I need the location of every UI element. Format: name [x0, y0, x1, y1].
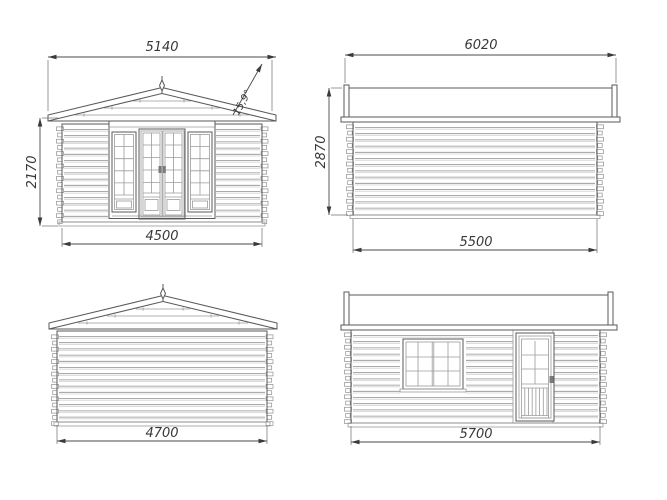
dim-side-upper-overall-height: 2870	[314, 135, 329, 168]
rear-elevation-view: 4700	[49, 284, 277, 444]
dim-side-upper-overall-width: 6020	[464, 38, 497, 53]
front-elevation-geometry	[38, 55, 276, 247]
dim-front-overall-width: 5140	[145, 40, 178, 55]
technical-drawing-cabin-elevations: 5140 2170 4500 15,9° 6020 2870 5500 4700…	[0, 0, 667, 500]
dim-side-lower-base-width: 5700	[459, 427, 492, 442]
front-elevation-view: 5140 2170 4500 15,9°	[25, 40, 276, 247]
side-elevation-upper-view: 6020 2870 5500	[314, 38, 620, 253]
dim-front-base-width: 4500	[145, 229, 178, 244]
side-elevation-lower-geometry	[341, 292, 617, 445]
rear-elevation-geometry	[49, 284, 277, 444]
dim-front-wall-height: 2170	[25, 155, 40, 188]
side-elevation-upper-geometry	[327, 53, 620, 253]
side-elevation-lower-view: 5700	[341, 292, 617, 445]
dim-rear-base-width: 4700	[145, 426, 178, 441]
dim-side-upper-base-width: 5500	[459, 235, 492, 250]
